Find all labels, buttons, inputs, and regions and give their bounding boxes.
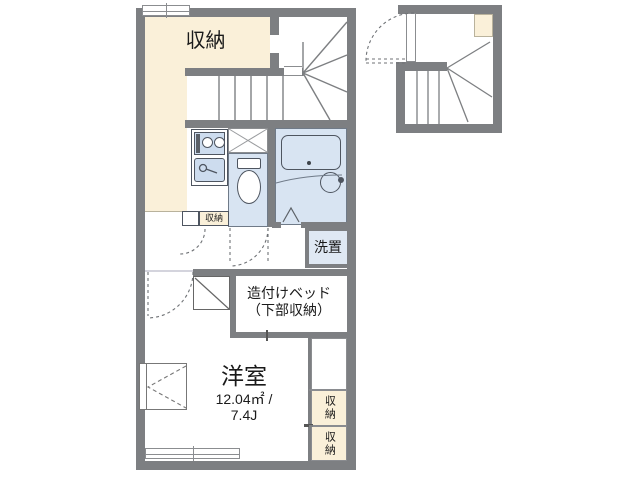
wall-bottom [136,461,356,470]
bed-wall-tick [266,330,268,341]
burner-right-icon [214,137,225,148]
stairdiagram-storage-fill [474,14,493,37]
stairdiagram-wall-bottom [398,124,502,133]
refrigerator-space [193,276,230,310]
kitchen-sink-icon [194,158,225,182]
under-bed-space [311,338,347,390]
bathtub-icon [281,135,341,170]
closet-top-label: 収納 [311,391,347,425]
casement-window-inner-line [146,364,147,409]
closet-bottom-label: 収納 [311,427,347,460]
bathtub-drain-icon [307,161,311,165]
wall-toilet-bath [268,128,275,227]
bath-faucet-icon [338,177,344,183]
laundry-label: 洗置 [309,231,347,264]
bedroom-door-swing [148,272,193,318]
stairs-treads-small [417,71,439,124]
toilet-door-swing [180,228,268,266]
hall-storage-label: 収納 [199,211,229,226]
stairdiagram-wall-stub [396,62,447,71]
stairdiagram-wall-right [493,5,502,133]
window-bottom [145,448,240,459]
floorplan-canvas: 収納 収納 洗置 造付けベッド （下部収納） 洋室 12.04㎡ / 7.4J … [0,0,632,480]
window-top [142,5,190,16]
wall-storage-right-upper [270,17,279,35]
toilet-shelf-box [228,128,268,153]
wall-stairs-bottom [185,120,347,128]
toilet-tank-icon [237,158,261,169]
wall-storage-right-lower [270,53,279,68]
stairs-fan-small [447,42,492,122]
burner-left-icon [202,137,213,148]
bath-basin-icon [320,172,341,193]
wall-hall-bedroom [193,269,347,276]
stairs-fan-main [303,22,347,120]
storage-column-fill [145,68,187,212]
entry-door-leaf [406,13,416,62]
hall-storage-box [182,211,199,226]
stair-landing-opening [284,66,302,76]
toilet-bowl-icon [237,170,261,204]
storage-room-label: 収納 [168,27,243,55]
stairdiagram-wall-left-lower [396,62,405,133]
wall-bath-door-left [272,222,281,228]
room-area-label: 12.04㎡ / [184,391,304,407]
room-jo-label: 7.4J [184,407,304,423]
room-name-label: 洋室 [184,362,304,390]
bed-label-line1: 造付けベッド [230,285,348,302]
bed-label-line2: （下部収納） [230,302,348,319]
stove-panel [196,134,200,153]
